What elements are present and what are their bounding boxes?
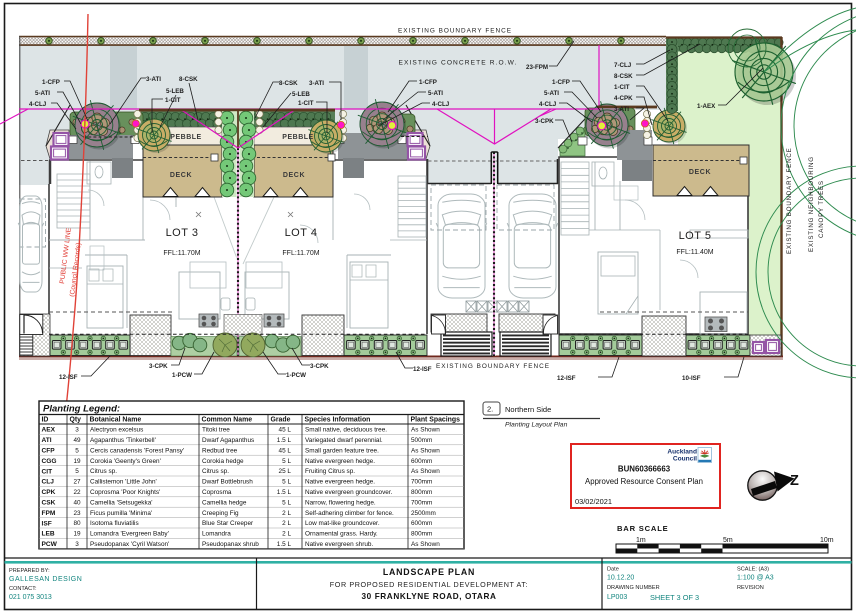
svg-text:Lomandra 'Evergreen Baby': Lomandra 'Evergreen Baby' (90, 531, 169, 538)
svg-text:3-ATI: 3-ATI (146, 76, 161, 83)
svg-text:80: 80 (73, 520, 81, 527)
svg-text:LOT 5: LOT 5 (679, 230, 712, 242)
svg-text:CGG: CGG (42, 458, 57, 465)
svg-text:03/02/2021: 03/02/2021 (575, 497, 612, 506)
svg-text:Agapanthus 'Tinkerbell': Agapanthus 'Tinkerbell' (90, 437, 156, 444)
svg-text:30 FRANKLYNE ROAD, OTARA: 30 FRANKLYNE ROAD, OTARA (362, 592, 497, 601)
svg-text:EXISTING BOUNDARY FENCE: EXISTING BOUNDARY FENCE (398, 28, 512, 35)
svg-text:45 L: 45 L (279, 447, 292, 454)
svg-text:BUN60366663: BUN60366663 (618, 465, 671, 474)
svg-text:700mm: 700mm (411, 479, 432, 486)
svg-text:Dwarf Bottlebrush: Dwarf Bottlebrush (202, 479, 253, 486)
svg-text:8-CSK: 8-CSK (179, 76, 198, 83)
svg-text:PCW: PCW (42, 541, 58, 548)
svg-text:Native evergreen hedge.: Native evergreen hedge. (305, 458, 375, 465)
svg-text:DRAWING NUMBER: DRAWING NUMBER (607, 585, 660, 591)
svg-text:Variegated dwarf perennial.: Variegated dwarf perennial. (305, 437, 383, 444)
svg-text:Fruiting Citrus sp.: Fruiting Citrus sp. (305, 468, 355, 475)
svg-text:CFP: CFP (42, 448, 56, 455)
svg-text:5-LEB: 5-LEB (166, 88, 184, 95)
svg-text:PEBBLE: PEBBLE (170, 134, 201, 141)
svg-text:5 L: 5 L (282, 479, 291, 486)
svg-text:Native evergreen groundcover.: Native evergreen groundcover. (305, 489, 393, 496)
svg-text:8-CSK: 8-CSK (614, 73, 633, 80)
svg-text:800mm: 800mm (411, 531, 432, 538)
svg-text:4-CLJ: 4-CLJ (432, 101, 450, 108)
svg-text:2 L: 2 L (282, 510, 291, 517)
svg-text:27: 27 (73, 479, 81, 486)
svg-text:19: 19 (73, 458, 81, 465)
svg-text:3-ATI: 3-ATI (309, 80, 324, 87)
svg-text:Planting Layout Plan: Planting Layout Plan (505, 422, 568, 429)
svg-text:LANDSCAPE PLAN: LANDSCAPE PLAN (383, 567, 475, 577)
svg-text:Low mat-like groundcover.: Low mat-like groundcover. (305, 520, 380, 527)
svg-text:4-CLJ: 4-CLJ (539, 101, 557, 108)
svg-text:FFL:11.40M: FFL:11.40M (676, 249, 713, 256)
svg-text:Species Information: Species Information (305, 417, 371, 424)
svg-text:Plant Spacings: Plant Spacings (411, 417, 461, 424)
svg-text:1:100 @ A3: 1:100 @ A3 (737, 575, 774, 582)
svg-text:GALLESAN DESIGN: GALLESAN DESIGN (9, 576, 82, 583)
svg-text:CPK: CPK (42, 489, 56, 496)
svg-text:23: 23 (73, 510, 81, 517)
svg-text:2 L: 2 L (282, 520, 291, 527)
svg-text:500mm: 500mm (411, 437, 432, 444)
svg-text:Cercis canadensis 'Forest Pans: Cercis canadensis 'Forest Pansy' (90, 447, 184, 454)
svg-text:Ornamental grass. Hardy.: Ornamental grass. Hardy. (305, 531, 378, 538)
svg-text:Native evergreen shrub.: Native evergreen shrub. (305, 541, 373, 548)
svg-text:5-ATI: 5-ATI (428, 90, 443, 97)
svg-text:Corokia 'Geenty's Green': Corokia 'Geenty's Green' (90, 458, 161, 465)
svg-text:49: 49 (73, 437, 81, 444)
svg-text:12-ISF: 12-ISF (59, 374, 78, 381)
svg-text:Z: Z (790, 473, 799, 489)
svg-text:CSK: CSK (42, 500, 56, 507)
svg-text:As Shown: As Shown (411, 541, 440, 548)
svg-text:ATI: ATI (42, 437, 52, 444)
svg-text:40: 40 (73, 499, 81, 506)
svg-text:1-CFP: 1-CFP (419, 79, 437, 86)
svg-text:10-ISF: 10-ISF (682, 375, 701, 382)
svg-text:700mm: 700mm (411, 499, 432, 506)
svg-text:FOR PROPOSED RESIDENTIAL DE: FOR PROPOSED RESIDENTIAL DEVELOPMENT AT: (330, 580, 528, 589)
svg-text:Common Name: Common Name (202, 417, 253, 424)
svg-text:600mm: 600mm (411, 458, 432, 465)
svg-text:5: 5 (75, 447, 79, 454)
svg-text:LOT 4: LOT 4 (285, 227, 318, 239)
svg-text:Lomandra: Lomandra (202, 531, 231, 538)
svg-text:LP003: LP003 (607, 594, 627, 601)
svg-text:PEBBLE: PEBBLE (282, 134, 313, 141)
svg-text:1-CIT: 1-CIT (298, 100, 314, 107)
svg-text:Corokia hedge: Corokia hedge (202, 458, 244, 465)
svg-text:1.5 L: 1.5 L (277, 437, 292, 444)
svg-text:CLJ: CLJ (42, 479, 55, 486)
svg-text:PREPARED BY:: PREPARED BY: (9, 568, 50, 574)
svg-text:Isotoma fluviatilis: Isotoma fluviatilis (90, 520, 139, 527)
svg-text:BAR SCALE: BAR SCALE (617, 524, 669, 533)
svg-text:Council: Council (673, 456, 697, 463)
svg-text:As Shown: As Shown (411, 427, 440, 434)
svg-text:4-CPK: 4-CPK (614, 95, 633, 102)
svg-text:Planting Legend:: Planting Legend: (43, 404, 120, 415)
svg-text:5 L: 5 L (282, 458, 291, 465)
svg-text:4-CLJ: 4-CLJ (29, 101, 47, 108)
svg-text:5: 5 (75, 468, 79, 475)
svg-text:ID: ID (42, 417, 49, 424)
svg-text:1.5 L: 1.5 L (277, 489, 292, 496)
svg-text:19: 19 (73, 531, 81, 538)
svg-text:Coprosma: Coprosma (202, 489, 232, 496)
svg-text:1-CFP: 1-CFP (552, 79, 570, 86)
svg-text:FPM: FPM (42, 510, 56, 517)
svg-text:3: 3 (75, 541, 79, 548)
svg-text:Camellia hedge: Camellia hedge (202, 499, 247, 506)
svg-text:SHEET 3 OF 3: SHEET 3 OF 3 (650, 593, 699, 602)
svg-text:Dwarf Agapanthus: Dwarf Agapanthus (202, 437, 254, 444)
svg-text:3: 3 (75, 427, 79, 434)
svg-text:1-CFP: 1-CFP (42, 79, 60, 86)
svg-text:3-CPK: 3-CPK (310, 363, 329, 370)
svg-text:600mm: 600mm (411, 520, 432, 527)
svg-text:10m: 10m (820, 537, 834, 544)
svg-text:LOT 3: LOT 3 (166, 227, 199, 239)
svg-text:Approved Resource Consent Plan: Approved Resource Consent Plan (585, 477, 703, 486)
svg-text:1-CIT: 1-CIT (614, 84, 630, 91)
svg-text:Pseudopanax 'Cyril Watson': Pseudopanax 'Cyril Watson' (90, 541, 169, 548)
svg-text:EXISTING CONCRETE R.O.W.: EXISTING CONCRETE R.O.W. (398, 60, 517, 67)
svg-text:25 L: 25 L (279, 468, 292, 475)
svg-text:AEX: AEX (42, 427, 56, 434)
svg-text:Auckland: Auckland (667, 449, 697, 456)
svg-text:021 075 3013: 021 075 3013 (9, 594, 52, 601)
svg-text:Creeping Fig: Creeping Fig (202, 510, 239, 517)
svg-text:Self-adhering climber for fenc: Self-adhering climber for fence. (305, 510, 394, 517)
svg-text:EXISTING BOUNDARY FENCE: EXISTING BOUNDARY FENCE (786, 147, 793, 254)
svg-text:10.12.20: 10.12.20 (607, 575, 634, 582)
svg-text:CONTACT:: CONTACT: (9, 586, 37, 592)
svg-text:Alectryon excelsus: Alectryon excelsus (90, 427, 143, 434)
svg-text:3-CPK: 3-CPK (149, 363, 168, 370)
svg-text:22: 22 (73, 489, 81, 496)
svg-text:1-PCW: 1-PCW (286, 372, 306, 379)
svg-text:5-LEB: 5-LEB (292, 91, 310, 98)
svg-text:8-CSK: 8-CSK (279, 80, 298, 87)
svg-text:Pseudopanax shrub: Pseudopanax shrub (202, 541, 259, 548)
svg-text:Citrus sp.: Citrus sp. (202, 468, 229, 475)
svg-text:SCALE: (A3): SCALE: (A3) (737, 567, 769, 573)
svg-text:FFL:11.70M: FFL:11.70M (282, 250, 319, 257)
svg-text:2500mm: 2500mm (411, 510, 436, 517)
svg-text:2 L: 2 L (282, 531, 291, 538)
svg-text:DECK: DECK (689, 169, 711, 176)
svg-text:REVISION: REVISION (737, 585, 764, 591)
svg-text:Grade: Grade (271, 417, 291, 424)
svg-text:Redbud tree: Redbud tree (202, 447, 238, 454)
svg-text:12-ISF: 12-ISF (413, 366, 432, 373)
svg-text:DECK: DECK (170, 172, 192, 179)
svg-text:1m: 1m (636, 537, 646, 544)
svg-text:Camellia 'Setsugekka': Camellia 'Setsugekka' (90, 499, 152, 506)
svg-text:5-ATI: 5-ATI (35, 90, 50, 97)
svg-text:1.5 L: 1.5 L (277, 541, 292, 548)
svg-text:45 L: 45 L (279, 427, 292, 434)
svg-text:As Shown: As Shown (411, 468, 440, 475)
svg-text:CIT: CIT (42, 468, 53, 475)
svg-text:5-ATI: 5-ATI (544, 90, 559, 97)
svg-text:As Shown: As Shown (411, 447, 440, 454)
svg-text:EXISTING BOUNDARY FENCE: EXISTING BOUNDARY FENCE (436, 363, 550, 370)
svg-text:23-FPM: 23-FPM (526, 64, 548, 71)
svg-text:Botanical Name: Botanical Name (90, 417, 142, 424)
svg-text:2.: 2. (487, 405, 493, 414)
svg-text:LEB: LEB (42, 531, 55, 538)
svg-text:Small native, deciduous tree.: Small native, deciduous tree. (305, 427, 387, 434)
svg-text:12-ISF: 12-ISF (557, 375, 576, 382)
svg-text:Date: Date (607, 567, 619, 573)
svg-text:Blue Star Creeper: Blue Star Creeper (202, 520, 254, 527)
svg-text:Qty: Qty (70, 417, 82, 424)
svg-text:5m: 5m (723, 537, 733, 544)
svg-text:Callistemon 'Little John': Callistemon 'Little John' (90, 479, 157, 486)
svg-text:1-PCW: 1-PCW (172, 372, 192, 379)
svg-text:Citrus sp.: Citrus sp. (90, 468, 117, 475)
svg-text:1-CIT: 1-CIT (165, 97, 181, 104)
svg-text:7-CLJ: 7-CLJ (614, 62, 632, 69)
svg-text:DECK: DECK (283, 172, 305, 179)
svg-text:Northern Side: Northern Side (505, 405, 551, 414)
svg-text:3-ATI: 3-ATI (614, 106, 629, 113)
svg-text:Narrow, flowering hedge.: Narrow, flowering hedge. (305, 499, 376, 506)
svg-text:EXISTING NEIGHBOURING: EXISTING NEIGHBOURING (808, 156, 815, 252)
svg-text:Titoki tree: Titoki tree (202, 427, 230, 434)
svg-text:CANOPY TREES: CANOPY TREES (818, 180, 825, 238)
svg-text:1-AEX: 1-AEX (697, 103, 716, 110)
svg-text:800mm: 800mm (411, 489, 432, 496)
svg-text:Small garden feature tree.: Small garden feature tree. (305, 447, 379, 454)
svg-text:3-CPK: 3-CPK (535, 118, 554, 125)
svg-text:Coprosma 'Poor Knights': Coprosma 'Poor Knights' (90, 489, 160, 496)
svg-text:ISF: ISF (42, 520, 52, 527)
svg-text:Ficus pumilla 'Minima': Ficus pumilla 'Minima' (90, 510, 152, 517)
svg-text:Native evergreen hedge.: Native evergreen hedge. (305, 479, 375, 486)
svg-text:5 L: 5 L (282, 499, 291, 506)
svg-text:FFL:11.70M: FFL:11.70M (163, 250, 200, 257)
